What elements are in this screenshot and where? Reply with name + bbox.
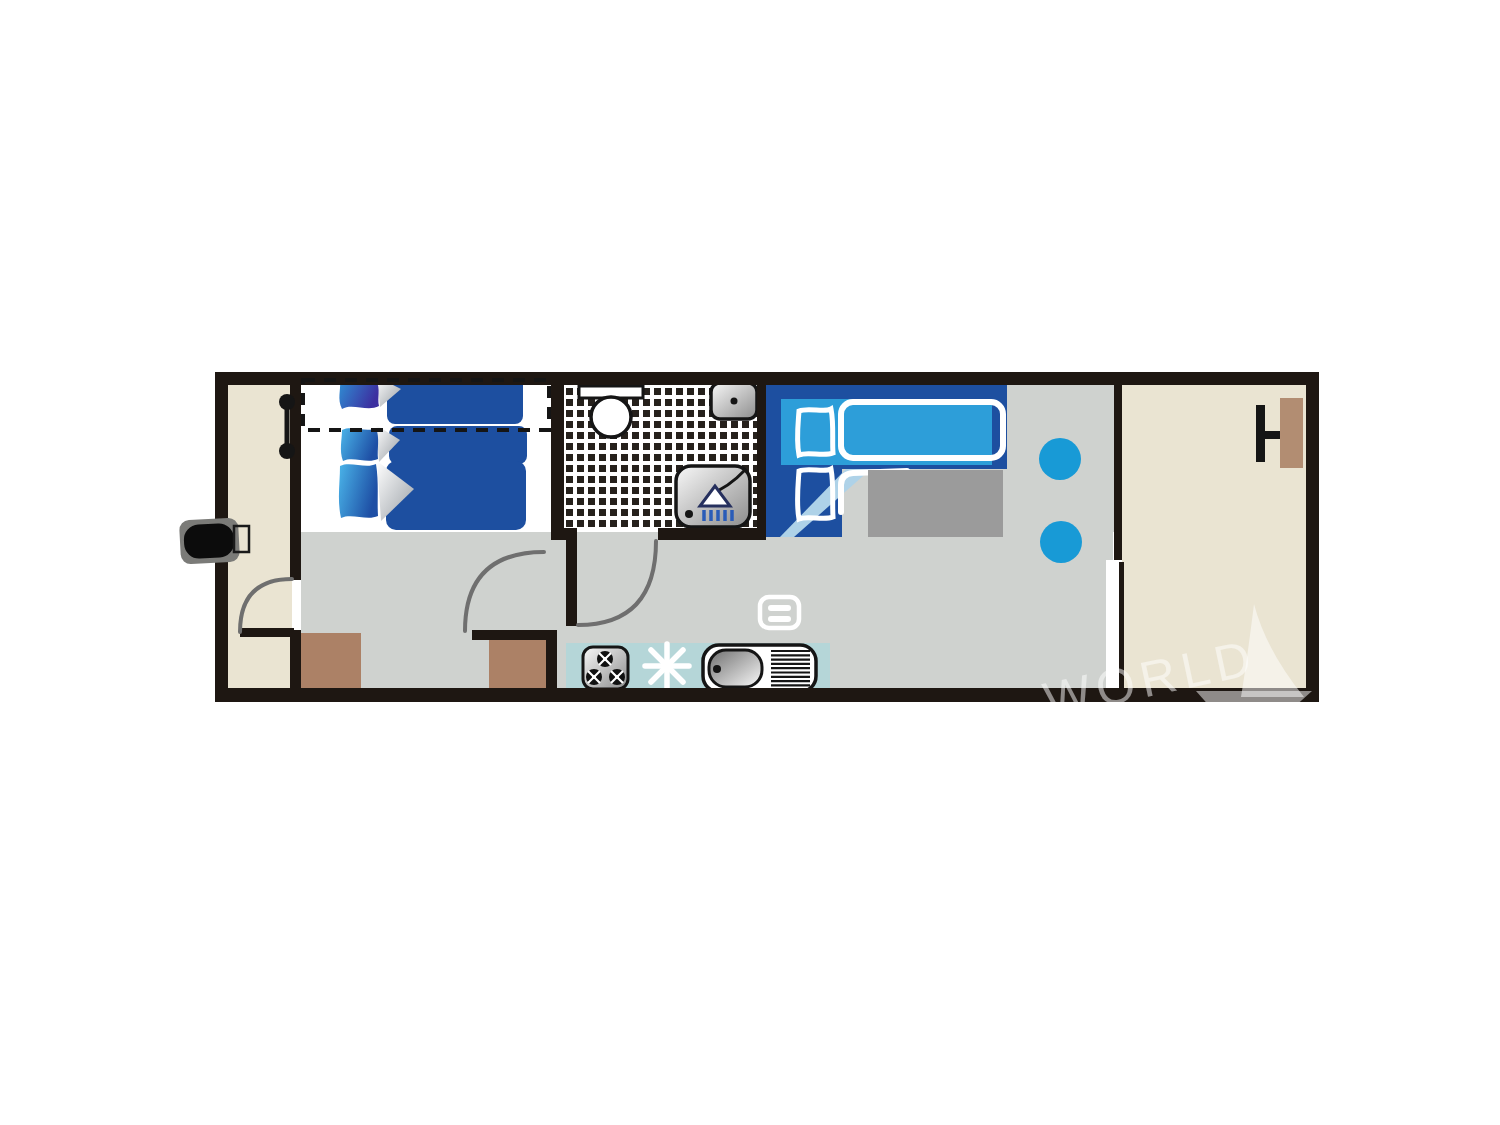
pillow xyxy=(339,464,378,518)
terrace-floor xyxy=(1122,385,1306,688)
entry-door-leaf xyxy=(240,628,294,637)
floor-plan-page: WORLD xyxy=(0,0,1500,1125)
wardrobe-cabinet-left xyxy=(301,633,361,688)
sliding-door xyxy=(1119,562,1124,688)
partition-bathroom-living xyxy=(757,384,766,534)
floor-plan-canvas: WORLD xyxy=(0,0,1500,1125)
wardrobe-nook-wall xyxy=(546,630,557,690)
entry-step xyxy=(179,517,240,564)
freezer-star-icon xyxy=(645,644,689,688)
wardrobe-cabinet-center xyxy=(489,640,547,688)
pillow xyxy=(341,428,378,461)
kitchen-sink xyxy=(703,645,816,692)
toilet-bowl xyxy=(591,397,631,437)
faucet-dot xyxy=(731,398,738,405)
faucet-dot xyxy=(713,665,721,673)
stool xyxy=(1040,521,1082,563)
bathroom-wall-right xyxy=(658,528,766,540)
wall-table xyxy=(1280,398,1303,468)
outer-wall-right xyxy=(1306,372,1319,702)
outer-wall-bottom xyxy=(215,688,1319,702)
partition-entry-bedroom-lower xyxy=(290,630,301,690)
outer-wall-top xyxy=(215,372,1319,385)
partition-entry-bedroom-upper xyxy=(290,384,301,580)
drainer-lines xyxy=(771,651,810,685)
shower xyxy=(676,466,750,527)
bathroom-door-leaf xyxy=(566,540,577,626)
table-support xyxy=(1265,431,1280,439)
partition-bedroom-bathroom xyxy=(551,384,564,534)
bench-seat xyxy=(1256,405,1265,462)
burner-icon xyxy=(586,669,602,685)
sliding-door-track xyxy=(1106,560,1120,690)
dinette-table xyxy=(868,470,1003,537)
bunk-beds xyxy=(339,377,527,530)
gas-hob xyxy=(583,647,628,689)
partition-living-terrace xyxy=(1114,384,1122,560)
burner-icon xyxy=(609,669,625,685)
stool xyxy=(1039,438,1081,480)
drain-dot xyxy=(685,510,693,518)
washbasin xyxy=(711,383,757,419)
burner-icon xyxy=(597,651,613,667)
bedroom-door-leaf xyxy=(472,630,556,640)
bathroom-wall-left xyxy=(551,528,577,540)
